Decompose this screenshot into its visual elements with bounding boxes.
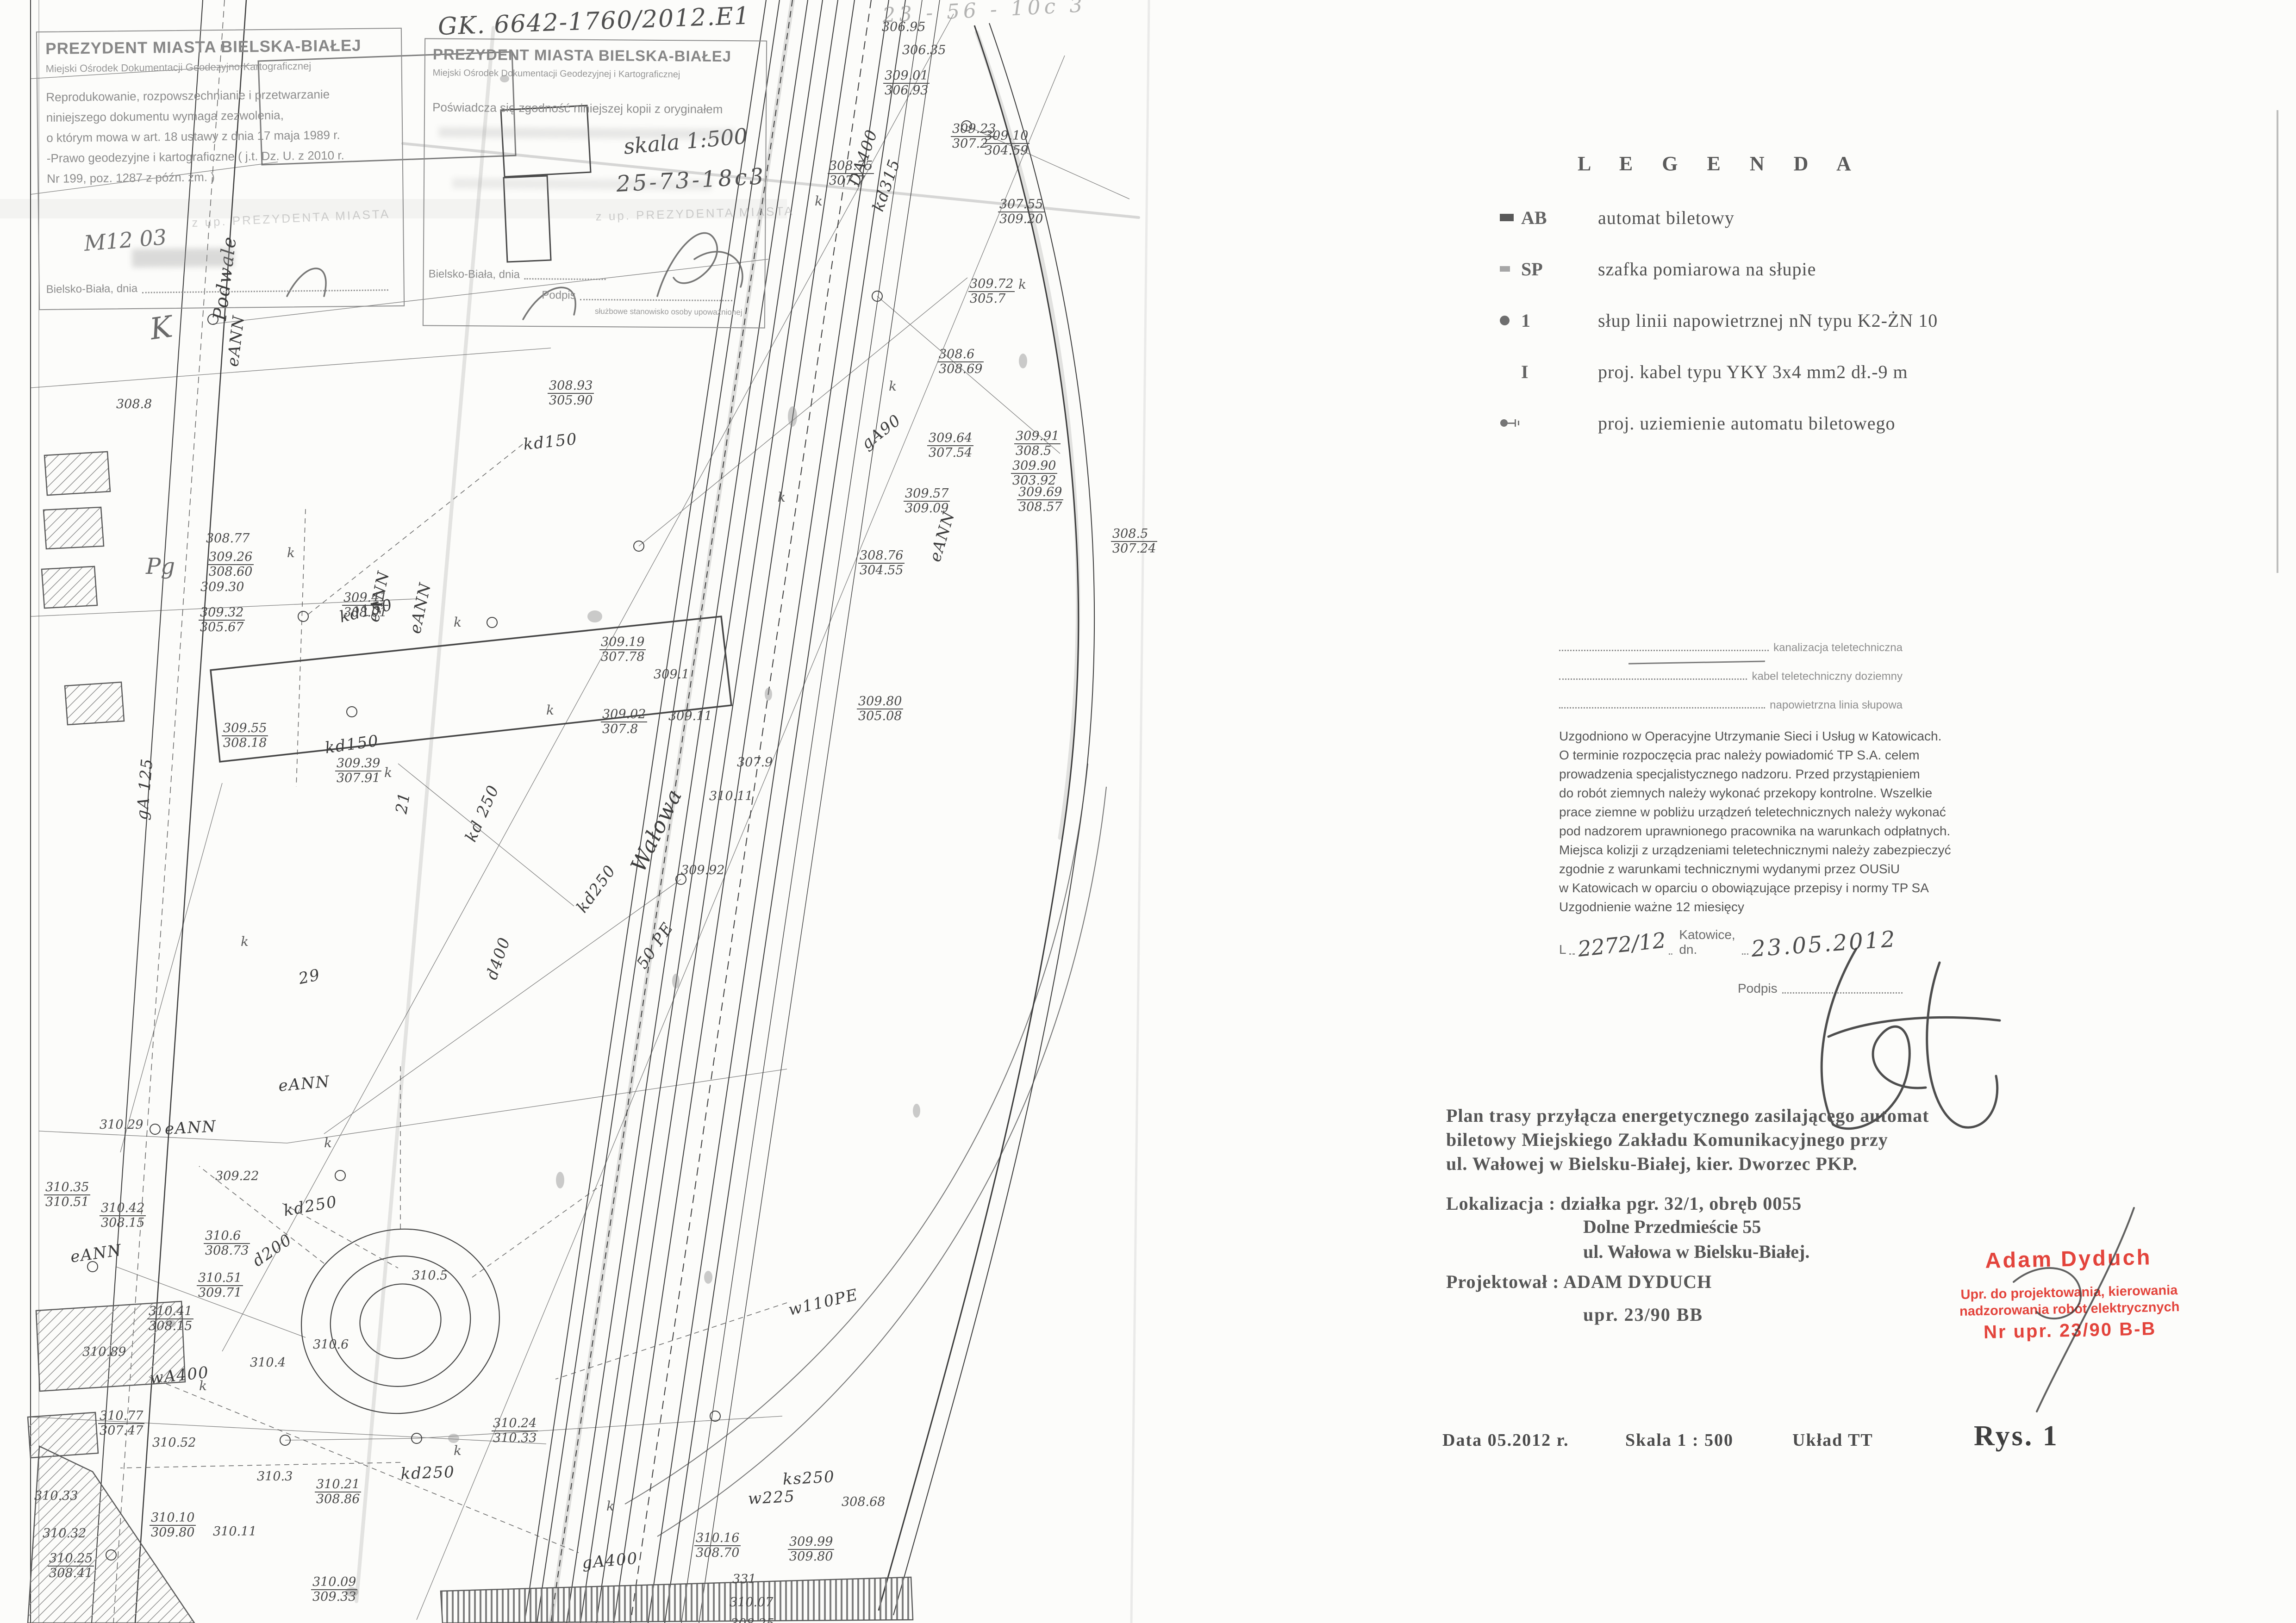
utility-key-row: napowietrzna linia słupowa <box>1559 683 1903 712</box>
legend-item: 1słup linii napowietrznej nN typu K2-ŻN … <box>1500 309 2097 332</box>
designer-line: Projektował : ADAM DYDUCH <box>1446 1271 1983 1293</box>
map-label: 310.51309.71 <box>197 1272 243 1300</box>
elevation-top: 310.24 <box>492 1417 538 1431</box>
address-line: ul. Wałowa w Bielsku-Białej. <box>1583 1239 1983 1264</box>
city-date-label: Bielsko-Biała, dnia <box>46 282 138 296</box>
elevation-bottom: 307.8 <box>601 722 647 736</box>
elevation-top: 309.02 <box>601 708 647 722</box>
map-label: 306.35 <box>902 44 946 57</box>
location-line: Lokalizacja : działka pgr. 32/1, obręb 0… <box>1446 1193 1983 1214</box>
elevation-bottom: 307.78 <box>599 650 646 664</box>
description-line: biletowy Miejskiego Zakładu Komunikacyjn… <box>1446 1128 1983 1152</box>
legend-symbol-cell <box>1500 214 1521 221</box>
map-label: 310.21308.86 <box>315 1478 361 1506</box>
dotted-line <box>1669 953 1672 955</box>
map-label: 310.89 <box>82 1346 126 1359</box>
map-label: 310.24310.33 <box>492 1417 538 1445</box>
stamp-title: PREZYDENT MIASTA BIELSKA-BIAŁEJ <box>433 46 761 66</box>
legend-label: szafka pomiarowa na słupie <box>1598 258 1816 280</box>
paragraph-line: Miejsca kolizji z urządzeniami teletechn… <box>1559 840 1903 859</box>
elevation-top: 308.6 <box>937 348 984 362</box>
elevation-bottom: 306.93 <box>883 84 930 97</box>
map-label: 309.72305.7 <box>968 278 1015 305</box>
elevation-bottom: 305.08 <box>857 709 903 723</box>
legend-item: proj. uziemienie automatu biletowego <box>1500 411 2097 435</box>
elevation-top: 309.41 <box>342 591 388 606</box>
map-label: 331 <box>732 1573 756 1586</box>
map-label: 310.3 <box>257 1470 293 1483</box>
map-label: eANN <box>278 1074 331 1094</box>
stamp-city-date-line: Bielsko-Biała, dnia <box>429 267 606 282</box>
elevation-bottom: 307.47 <box>98 1424 144 1437</box>
map-label: 21 <box>393 790 413 815</box>
elevation-bottom: 309.80 <box>150 1526 196 1539</box>
dotted-line <box>1559 650 1769 651</box>
elevation-bottom: 305.90 <box>548 394 594 407</box>
elevation-bottom: 309.20 <box>998 212 1044 226</box>
figure-number: Rys. 1 <box>1974 1420 2059 1453</box>
footer-date: Data 05.2012 r. <box>1442 1430 1569 1450</box>
map-label: Pg <box>146 555 175 578</box>
paragraph-line: Uzgodnienie ważne 12 miesięcy <box>1559 897 1903 916</box>
elevation-top: 309.55 <box>222 722 268 736</box>
utility-key-row: kabel teletechniczny doziemny <box>1559 654 1903 683</box>
agreement-prefix: L <box>1559 942 1566 957</box>
legend-label: proj. uziemienie automatu biletowego <box>1598 412 1895 434</box>
map-label: 309.99309.80 <box>788 1536 834 1563</box>
elevation-bottom: 310.33 <box>492 1431 538 1445</box>
stamp-subtitle: Miejski Ośrodek Dokumentacji Geodezyjnej… <box>433 68 761 81</box>
elevation-top: 310.21 <box>315 1478 361 1492</box>
legend: L E G E N D A ABautomat biletowySPszafka… <box>1500 152 2097 463</box>
paragraph-line: prace ziemne w pobliżu urządzeń teletech… <box>1559 802 1903 821</box>
elevation-bottom: 309.71 <box>197 1286 243 1300</box>
elevation-bottom: 305.67 <box>199 621 245 634</box>
legend-code: SP <box>1521 258 1598 280</box>
map-label: 308.5307.24 <box>1111 528 1157 555</box>
elevation-top: 309.64 <box>927 432 973 446</box>
elevation-top: 307.55 <box>998 198 1044 212</box>
map-label: 309.92 <box>681 864 724 877</box>
stamp-modgik-reproduction: PREZYDENT MIASTA BIELSKA-BIAŁEJ Miejski … <box>36 28 405 310</box>
elevation-bottom: 307.91 <box>335 771 381 785</box>
map-label: 308.76304.55 <box>858 549 905 577</box>
elevation-top: 309.80 <box>857 695 903 709</box>
dotted-line <box>1559 678 1747 680</box>
map-label: k <box>241 935 249 948</box>
map-label: k <box>454 1444 462 1457</box>
legend-label: automat biletowy <box>1598 207 1734 229</box>
elevation-top: 310.41 <box>147 1305 193 1319</box>
dotted-line <box>524 278 605 280</box>
map-label: 307.55309.20 <box>998 198 1044 226</box>
map-label: 310.6308.73 <box>204 1230 250 1257</box>
footer-uklad: Układ TT <box>1792 1430 1873 1450</box>
paragraph-line: zgodnie z warunkami technicznymi wydanym… <box>1559 859 1903 878</box>
grounding-icon <box>1500 418 1521 428</box>
map-label: k <box>889 379 897 393</box>
elevation-bottom: 308.69 <box>937 362 984 376</box>
map-label: 310.32 <box>43 1527 86 1540</box>
utility-key-row: kanalizacja teletechniczna <box>1559 626 1903 654</box>
elevation-top: 308.76 <box>858 549 905 564</box>
elevation-bottom: 308.18 <box>222 736 268 750</box>
elevation-top: 310.35 <box>44 1181 90 1195</box>
map-label: k <box>546 703 554 717</box>
map-label: 308.25 <box>730 1617 774 1623</box>
legend-item: SPszafka pomiarowa na słupie <box>1500 257 2097 280</box>
map-label: 310.42308.15 <box>100 1202 146 1230</box>
map-label: 309.01306.93 <box>883 69 930 97</box>
stamp-faint-caps: z up. PREZYDENTA MIASTA <box>595 204 794 224</box>
elevation-bottom: 307.7 <box>828 174 874 187</box>
paragraph-line: Uzgodniono w Operacyjne Utrzymanie Sieci… <box>1559 727 1903 746</box>
paragraph-line: w Katowicach w oparciu o obowiązujące pr… <box>1559 878 1903 897</box>
license-line: upr. 23/90 BB <box>1583 1304 1983 1325</box>
map-label: 309.32305.67 <box>199 606 245 634</box>
map-label: k <box>199 1379 207 1393</box>
dotted-line <box>1742 953 1748 955</box>
pole-dot-icon <box>1500 316 1510 325</box>
elevation-bottom: 308.60 <box>207 565 254 578</box>
page-edge-line <box>2277 110 2278 573</box>
elevation-top: 309.10 <box>983 130 1029 144</box>
agreement-paragraph: Uzgodniono w Operacyjne Utrzymanie Sieci… <box>1559 727 1903 916</box>
stamp-podpis-line: Podpis <box>542 289 732 303</box>
podpis-label: Podpis <box>542 289 576 302</box>
stamp-body-text: Reprodukowanie, rozpowszechnianie i prze… <box>46 83 396 189</box>
elevation-bottom: 308.70 <box>694 1546 741 1560</box>
footer-scale: Skala 1 : 500 <box>1625 1430 1734 1450</box>
stamp-body-line: Nr 199, poz. 1287 z późn. zm. ) <box>47 165 396 189</box>
legend-code: AB <box>1521 207 1598 229</box>
dotted-line <box>1559 707 1765 709</box>
elevation-top: 310.51 <box>197 1272 243 1286</box>
map-label: 309.22 <box>215 1170 259 1183</box>
plan-description: Plan trasy przyłącza energetycznego zasi… <box>1446 1104 1983 1325</box>
dotted-line <box>580 299 733 301</box>
podpis-label: Podpis <box>1738 981 1778 996</box>
elevation-top: 310.10 <box>150 1511 196 1526</box>
elevation-bottom: 308.15 <box>147 1319 193 1333</box>
map-label: k <box>287 546 295 560</box>
legend-code: 1 <box>1521 310 1598 331</box>
elevation-top: 309.01 <box>883 69 930 84</box>
legend-rows: ABautomat biletowySPszafka pomiarowa na … <box>1500 206 2097 435</box>
map-label: 309.30 <box>200 581 244 594</box>
city-label: Katowice, dn. <box>1679 927 1735 957</box>
map-label: k <box>384 766 392 779</box>
map-label: 310.41308.15 <box>147 1305 193 1333</box>
map-label: 309.1 <box>654 668 689 681</box>
map-label: 309.69308.57 <box>1017 486 1063 514</box>
map-label: k <box>1018 278 1026 291</box>
map-label: 309.26308.60 <box>207 551 254 578</box>
map-label: 310.77307.47 <box>98 1410 144 1437</box>
elevation-bottom: 308.5 <box>1014 444 1061 458</box>
red-stamp-signature <box>1981 1203 2213 1416</box>
stamp-body-text: Poświadcza się zgodność niniejszej kopii… <box>432 97 760 120</box>
address-line: Dolne Przedmieście 55 <box>1583 1214 1983 1239</box>
elevation-bottom: 309.33 <box>311 1590 357 1604</box>
map-label: k <box>606 1499 614 1513</box>
elevation-top: 309.39 <box>335 757 381 771</box>
map-label: 310.6 <box>313 1338 349 1351</box>
legend-item: ABautomat biletowy <box>1500 206 2097 229</box>
map-label: 310.5 <box>412 1269 448 1282</box>
legend-code: I <box>1521 361 1598 383</box>
map-label: k <box>324 1136 332 1150</box>
elevation-bottom: 308.41 <box>48 1567 94 1580</box>
stamp-subtitle: Miejski Ośrodek Dokumentacji Geodezyjno-… <box>46 59 395 75</box>
map-label: 308.68 <box>842 1496 885 1509</box>
stamp-body-line: niniejszego dokumentu wymaga zezwolenia, <box>46 104 395 128</box>
map-label: k <box>454 616 462 629</box>
elevation-top: 308.75 <box>828 160 874 174</box>
elevation-top: 309.19 <box>599 636 646 650</box>
elevation-top: 310.09 <box>311 1576 357 1590</box>
elevation-bottom: 305.7 <box>968 292 1015 305</box>
elevation-bottom: 308.15 <box>100 1216 146 1230</box>
map-label: 310.16308.70 <box>694 1532 741 1560</box>
map-label: 309.80305.08 <box>857 695 903 723</box>
map-label: 310.33 <box>34 1490 78 1503</box>
map-label: 310.10309.80 <box>150 1511 196 1539</box>
stamp-body-line: o którym mowa w art. 18 ustawy z dnia 17… <box>46 124 395 148</box>
legend-label: proj. kabel typu YKY 3x4 mm2 dł.-9 m <box>1598 361 1908 383</box>
map-label: 310.07 <box>730 1596 773 1609</box>
stamp-body-line: -Prawo geodezyjne i kartograficzne ( j.t… <box>47 144 396 168</box>
legend-item: Iproj. kabel typu YKY 3x4 mm2 dł.-9 m <box>1500 360 2097 383</box>
map-label: 309.41308.01 <box>342 591 388 619</box>
elevation-top: 310.16 <box>694 1532 741 1546</box>
map-label: 310.52 <box>152 1436 196 1449</box>
map-label: 310.11 <box>709 790 753 803</box>
paragraph-line: O terminie rozpoczęcia prac należy powia… <box>1559 746 1903 765</box>
ticket-machine-box-icon <box>1500 214 1514 221</box>
map-label: k <box>778 491 786 504</box>
map-label: 308.75307.7 <box>828 160 874 187</box>
meter-cabinet-box-icon <box>1500 266 1510 272</box>
elevation-bottom: 307.54 <box>927 446 973 460</box>
elevation-bottom: 310.51 <box>44 1195 90 1209</box>
map-label: 310.09309.33 <box>311 1576 357 1604</box>
map-label: 309.10304.59 <box>983 130 1029 157</box>
map-label: w225 <box>748 1489 796 1508</box>
elevation-bottom: 308.73 <box>204 1244 250 1257</box>
utility-key-rows: kanalizacja teletechnicznakabel teletech… <box>1559 626 1903 712</box>
legend-symbol-cell <box>1500 266 1521 272</box>
elevation-top: 309.32 <box>199 606 245 621</box>
dotted-line <box>142 289 388 293</box>
map-label: 308.77 <box>206 532 250 545</box>
map-label: 310.29 <box>100 1119 143 1132</box>
paragraph-line: pod nadzorem uprawnionego pracownika na … <box>1559 821 1903 840</box>
stamp-modgik-certify: PREZYDENT MIASTA BIELSKA-BIAŁEJ Miejski … <box>423 38 767 328</box>
elevation-bottom: 309.80 <box>788 1550 834 1563</box>
elevation-top: 309.26 <box>207 551 254 565</box>
survey-map: PodwaleeANNeANNeANNeANNeANNeANNeANNWałow… <box>0 0 1167 1623</box>
scanned-site-plan-document: PodwaleeANNeANNeANNeANNeANNeANNeANNWałow… <box>0 0 2296 1623</box>
elevation-bottom: 308.01 <box>342 606 388 619</box>
map-label: 29 <box>297 967 322 987</box>
elevation-bottom: 308.57 <box>1017 500 1063 514</box>
stamp-body-line: Reprodukowanie, rozpowszechnianie i prze… <box>46 83 395 107</box>
utility-key-label: kanalizacja teletechniczna <box>1773 641 1903 654</box>
legend-label: słup linii napowietrznej nN typu K2-ŻN 1… <box>1598 310 1938 331</box>
elevation-bottom: 307.24 <box>1111 542 1157 555</box>
stamp-small-note: służbowe stanowisko osoby upoważnionej <box>595 307 742 317</box>
map-label: K <box>148 311 175 345</box>
map-label: 310.25308.41 <box>48 1552 94 1580</box>
legend-symbol-cell <box>1500 316 1521 325</box>
city-date-label: Bielsko-Biała, dnia <box>429 267 520 281</box>
map-label: 309.90303.92 <box>1011 460 1057 487</box>
map-label: 309.57309.09 <box>904 487 950 515</box>
map-label: 308.93305.90 <box>548 379 594 407</box>
elevation-bottom: 304.59 <box>983 144 1029 157</box>
elevation-top: 310.77 <box>98 1410 144 1424</box>
elevation-bottom: 309.09 <box>904 502 950 515</box>
map-label: 309.39307.91 <box>335 757 381 785</box>
map-label: 309.19307.78 <box>599 636 646 664</box>
elevation-bottom: 308.86 <box>315 1492 361 1506</box>
stamp-faint-caps: z up. PREZYDENTA MIASTA <box>192 207 391 230</box>
elevation-top: 310.42 <box>100 1202 146 1216</box>
stamp-city-date-line: Bielsko-Biała, dnia <box>46 280 388 296</box>
legend-title: L E G E N D A <box>1578 152 2097 175</box>
map-label: 310.11 <box>213 1525 256 1538</box>
map-label: 308.8 <box>116 398 152 411</box>
paragraph-line: prowadzenia specjalistycznego nadzoru. P… <box>1559 765 1903 784</box>
map-label: 309.11 <box>668 710 712 723</box>
description-line: Plan trasy przyłącza energetycznego zasi… <box>1446 1104 1983 1128</box>
elevation-top: 309.69 <box>1017 486 1063 500</box>
map-label: 309.55308.18 <box>222 722 268 750</box>
stamp-body-line: Poświadcza się zgodność niniejszej kopii… <box>432 97 760 120</box>
map-label: 308.6308.69 <box>937 348 984 376</box>
map-label: eANN <box>164 1119 217 1138</box>
map-label: 309.64307.54 <box>927 432 973 460</box>
paragraph-line: do robót ziemnych należy wykonać przekop… <box>1559 784 1903 802</box>
map-label: 309.91308.5 <box>1014 430 1061 458</box>
map-label: 307.9 <box>737 756 773 769</box>
map-label: k <box>815 194 823 208</box>
legend-symbol-cell <box>1500 418 1521 428</box>
elevation-top: 309.99 <box>788 1536 834 1550</box>
elevation-top: 308.93 <box>548 379 594 394</box>
map-label: kd250 <box>400 1464 455 1482</box>
utility-key-label: kabel teletechniczny doziemny <box>1752 670 1903 683</box>
dotted-line <box>1569 953 1575 955</box>
map-label: 310.35310.51 <box>44 1181 90 1209</box>
map-label: ks250 <box>782 1469 836 1488</box>
map-label: 309.02307.8 <box>601 708 647 736</box>
utility-key-label: napowietrzna linia słupowa <box>1770 699 1903 712</box>
elevation-bottom: 304.55 <box>858 564 905 577</box>
handwritten-agreement-number: 2272/12 <box>1577 927 1667 962</box>
elevation-top: 309.91 <box>1014 430 1061 444</box>
elevation-top: 309.72 <box>968 278 1015 292</box>
elevation-top: 308.5 <box>1111 528 1157 542</box>
map-label: 310.4 <box>250 1356 286 1369</box>
elevation-top: 309.57 <box>904 487 950 502</box>
elevation-top: 310.6 <box>204 1230 250 1244</box>
elevation-top: 310.25 <box>48 1552 94 1567</box>
stamp-title: PREZYDENT MIASTA BIELSKA-BIAŁEJ <box>45 36 394 58</box>
elevation-top: 309.90 <box>1011 460 1057 474</box>
description-line: ul. Wałowej w Bielsku-Białej, kier. Dwor… <box>1446 1152 1983 1176</box>
